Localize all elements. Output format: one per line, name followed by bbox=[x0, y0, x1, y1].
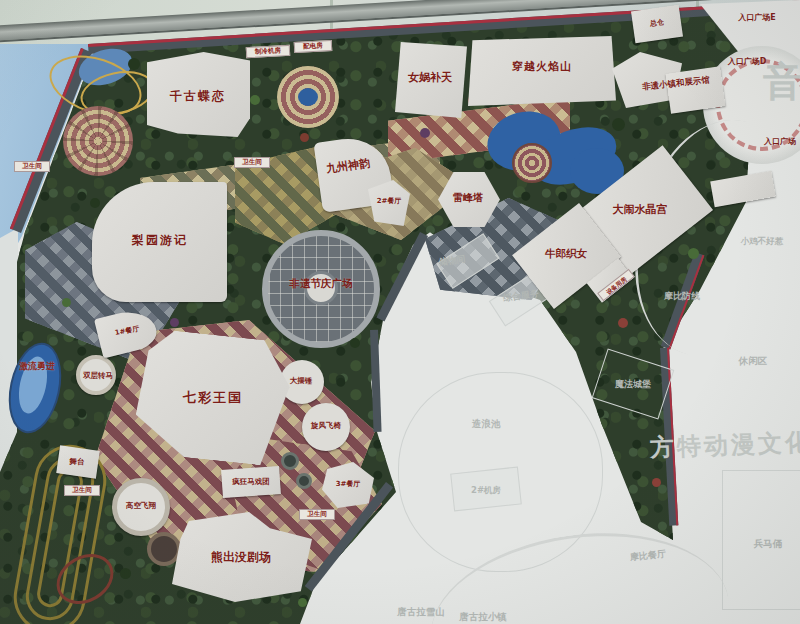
faded-label-wavepool: 造浪池 bbox=[472, 418, 501, 431]
chiller-room-tag: 制冷机房 bbox=[246, 45, 291, 58]
round-plaza-north-pond bbox=[298, 88, 318, 106]
label-restaurant3: 3#餐厅 bbox=[336, 479, 361, 489]
restroom-tag-south: 卫生间 bbox=[299, 509, 335, 520]
faded-label-tanggulatown: 唐古拉小镇 bbox=[459, 611, 507, 624]
label-shuangcengzhuanma: 双层转马 bbox=[83, 371, 113, 381]
restroom-tag-north: 卫生间 bbox=[234, 157, 270, 168]
faded-label-snowmountain: 唐古拉雪山 bbox=[397, 606, 445, 619]
label-qiangudielian: 千古蝶恋 bbox=[170, 88, 226, 105]
restroom-tag-southwest: 卫生间 bbox=[64, 485, 100, 496]
label-xiongchumo: 熊出没剧场 bbox=[211, 549, 271, 566]
faded-label-xiaoji: 小鸡不好惹 bbox=[741, 236, 784, 248]
label-qicaiwangguo: 七彩王国 bbox=[183, 389, 243, 407]
faded-label-mobiline: 摩比防线 bbox=[664, 290, 700, 303]
faded-label-castle: 魔法城堡 bbox=[615, 378, 651, 391]
restroom-tag-west: 卫生间 bbox=[14, 161, 50, 172]
park-map-photo: 卫生间 卫生间 卫生间 卫生间 制冷机房 配电房 设备用房 千古蝶恋 女娲补天 … bbox=[0, 0, 800, 624]
label-nvwabutian: 女娲补天 bbox=[408, 70, 452, 85]
round-plaza-west-spokes bbox=[63, 106, 133, 176]
label-liyuanyouji: 梨园游记 bbox=[132, 232, 188, 249]
power-room-tag: 配电房 bbox=[294, 40, 333, 53]
ring-ride-southwest bbox=[147, 532, 181, 566]
label-niulangzhinv: 牛郎织女 bbox=[545, 247, 587, 261]
label-entrance: 入口广场 bbox=[764, 136, 796, 147]
label-huoyanshan: 穿越火焰山 bbox=[512, 59, 572, 74]
teacup-ride-2 bbox=[296, 473, 312, 489]
label-restaurant2: 2#餐厅 bbox=[377, 196, 402, 206]
label-wutai: 舞台 bbox=[70, 457, 85, 467]
label-danaoshuijinggong: 大闹水晶宫 bbox=[613, 202, 668, 217]
teacup-ride-1 bbox=[281, 452, 299, 470]
label-warehouse: 总仓 bbox=[649, 17, 664, 29]
label-entrance-d: 入口广场D bbox=[728, 56, 767, 67]
faded-label-machineroom2: 2#机房 bbox=[471, 485, 501, 497]
label-xuanfengfeiyi: 旋风飞椅 bbox=[311, 421, 341, 431]
label-leifengta: 雷峰塔 bbox=[453, 191, 483, 205]
label-entrance-e: 入口广场E bbox=[738, 12, 775, 23]
label-jiliuyongjin: 激流勇进 bbox=[19, 360, 55, 373]
corner-watermark: 音 bbox=[763, 54, 800, 109]
label-fengkuangmaxituan: 疯狂马戏团 bbox=[232, 477, 270, 487]
faded-label-leisure: 休闲区 bbox=[739, 355, 768, 368]
label-feiyijieqing: 非遗节庆广场 bbox=[290, 277, 353, 291]
label-dabaichui: 大摆锤 bbox=[290, 376, 313, 386]
faded-label-terracotta: 兵马俑 bbox=[754, 538, 783, 551]
brand-watermark: 方特动漫文化科技 bbox=[650, 424, 800, 464]
label-gaokongfeixiang: 高空飞翔 bbox=[126, 501, 156, 511]
river-island bbox=[512, 143, 552, 183]
